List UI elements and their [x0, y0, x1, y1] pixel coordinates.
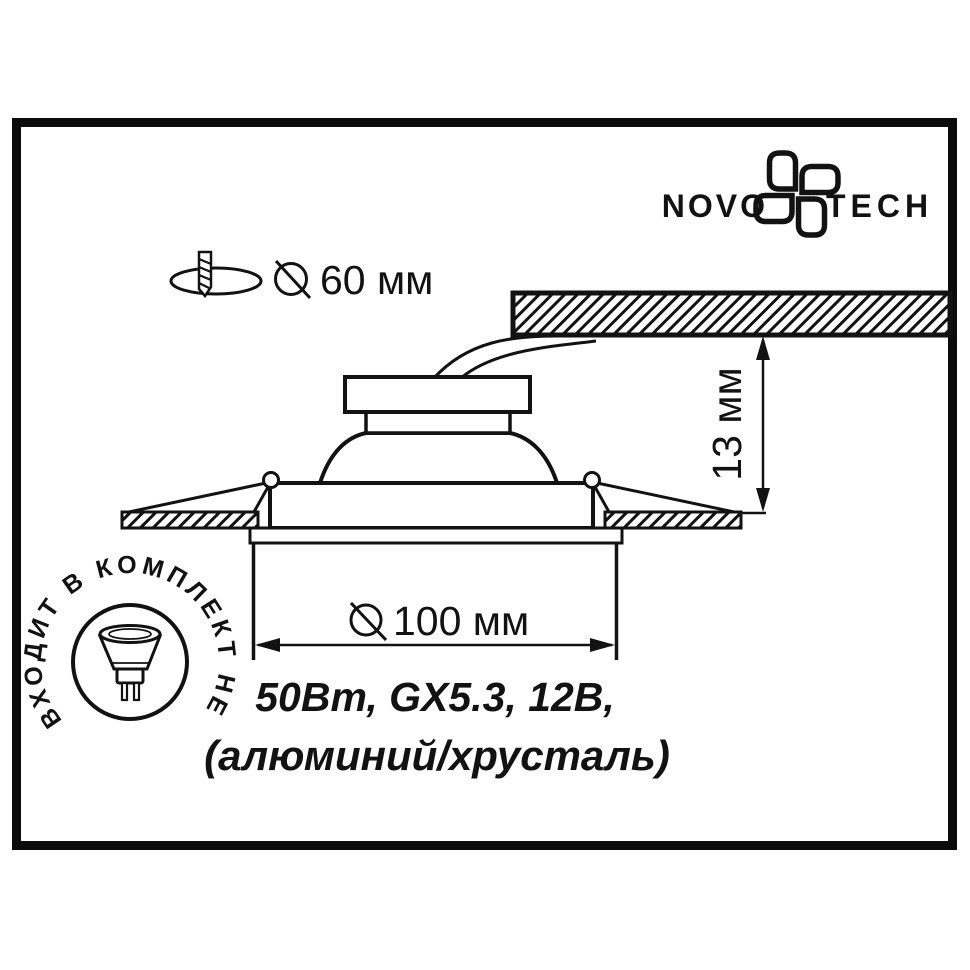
housing-neck — [366, 412, 510, 433]
drill-hole-icon — [171, 252, 261, 296]
diameter-icon — [351, 603, 386, 640]
cutout-diameter-value: 60 мм — [320, 257, 433, 303]
logo-text-novo: NOVO — [662, 188, 768, 224]
logo-text-tech: TECH — [826, 188, 933, 224]
cutout-diameter-dimension: 60 мм — [276, 257, 434, 303]
technical-drawing: NOVO TECH 60 мм — [0, 0, 970, 970]
product-diagram-canvas: NOVO TECH 60 мм — [0, 0, 970, 970]
lamp-not-included-stamp: ВХОДИТ В КОМПЛЕКТ НЕ — [18, 551, 241, 733]
recess-depth-dimension: 13 мм — [704, 336, 770, 512]
visible-diameter-value: 100 мм — [393, 598, 529, 644]
ceiling-panel — [513, 293, 950, 335]
mounting-can — [270, 483, 593, 528]
spec-line-1: 50Вт, GX5.3, 12В, — [255, 674, 615, 720]
spec-line-2: (алюминий/хрусталь) — [204, 732, 670, 779]
mounting-wires — [434, 336, 596, 378]
lamp-housing-dome — [320, 433, 557, 483]
mr16-lamp-icon — [100, 626, 160, 701]
recess-depth-value: 13 мм — [704, 367, 750, 480]
visible-diameter-dimension: 100 мм — [255, 598, 615, 652]
diameter-icon — [276, 261, 311, 298]
novotech-logo: NOVO TECH — [662, 153, 933, 235]
terminal-box — [345, 377, 530, 412]
novotech-pinwheel-icon — [756, 153, 838, 235]
ceiling-section-left — [122, 512, 258, 528]
trim-flange — [250, 528, 622, 543]
ceiling-section-right — [605, 512, 741, 528]
